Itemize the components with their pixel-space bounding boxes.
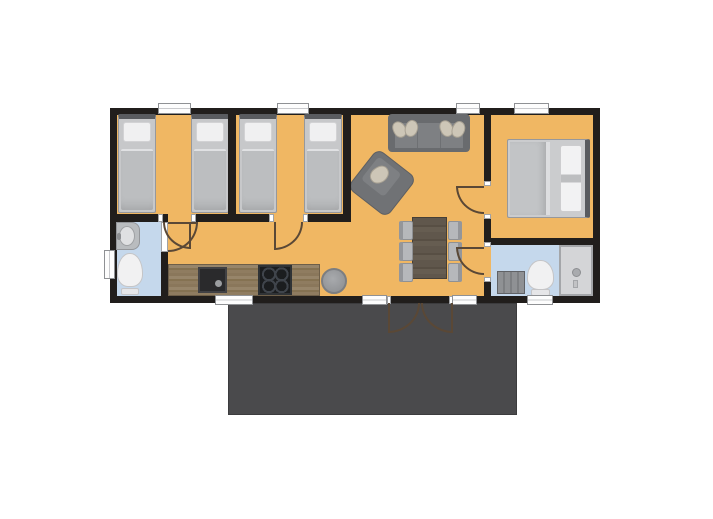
- wall-bedrooms-south-1: [110, 214, 158, 222]
- deck-terrace: [228, 303, 517, 415]
- chair-1: [399, 221, 413, 240]
- cooktop: [258, 265, 292, 295]
- window-kitchen: [215, 295, 253, 305]
- bed-single-1: [118, 114, 156, 213]
- pouf: [321, 268, 347, 294]
- window-master-bedroom: [514, 103, 549, 114]
- window-bathroom2: [527, 295, 553, 305]
- bed-double: [507, 139, 590, 218]
- wall-bedrooms-south-3: [308, 214, 351, 222]
- wall-bedroom-b-living: [343, 108, 351, 222]
- floor-plan: [0, 0, 713, 519]
- window-living: [456, 103, 480, 114]
- wall-bedrooms-south-2: [196, 214, 269, 222]
- bed-single-3: [239, 114, 277, 213]
- shower: [559, 245, 593, 296]
- wall-master-bathroom2: [484, 238, 600, 245]
- wall-living-east-upper: [484, 108, 491, 181]
- wall-living-east-lower: [484, 282, 491, 296]
- window-entry-sidelight-left: [362, 295, 387, 305]
- jamb-bedroom-a-left: [158, 214, 163, 222]
- bed-single-4: [304, 114, 342, 213]
- jamb-bathroom2-top: [484, 242, 491, 247]
- wall-bedroom-a-b: [228, 108, 236, 222]
- jamb-bedroom-b-right: [303, 214, 308, 222]
- bathroom1-sink: [116, 222, 140, 250]
- chair-3: [399, 263, 413, 282]
- window-bathroom1: [104, 250, 115, 279]
- kitchen-counter: [168, 264, 320, 296]
- chair-6: [448, 263, 462, 282]
- bathroom2-toilet: [527, 260, 554, 296]
- jamb-bathroom2-bottom: [484, 277, 491, 282]
- window-bedroom-b: [277, 103, 309, 114]
- jamb-master-top: [484, 181, 491, 186]
- chair-2: [399, 242, 413, 261]
- jamb-master-bottom: [484, 214, 491, 219]
- jamb-bedroom-b-left: [269, 214, 274, 222]
- chair-4: [448, 221, 462, 240]
- dining-table: [412, 217, 447, 279]
- wall-bathroom1-east-bottom: [161, 252, 168, 296]
- bathroom2-cabinet: [497, 271, 525, 294]
- bed-single-2: [191, 114, 229, 213]
- kitchen-sink: [198, 267, 227, 293]
- jamb-bedroom-a-right: [191, 214, 196, 222]
- window-entry-sidelight-right: [452, 295, 477, 305]
- window-bedroom-a: [158, 103, 191, 114]
- bathroom1-toilet: [117, 253, 143, 295]
